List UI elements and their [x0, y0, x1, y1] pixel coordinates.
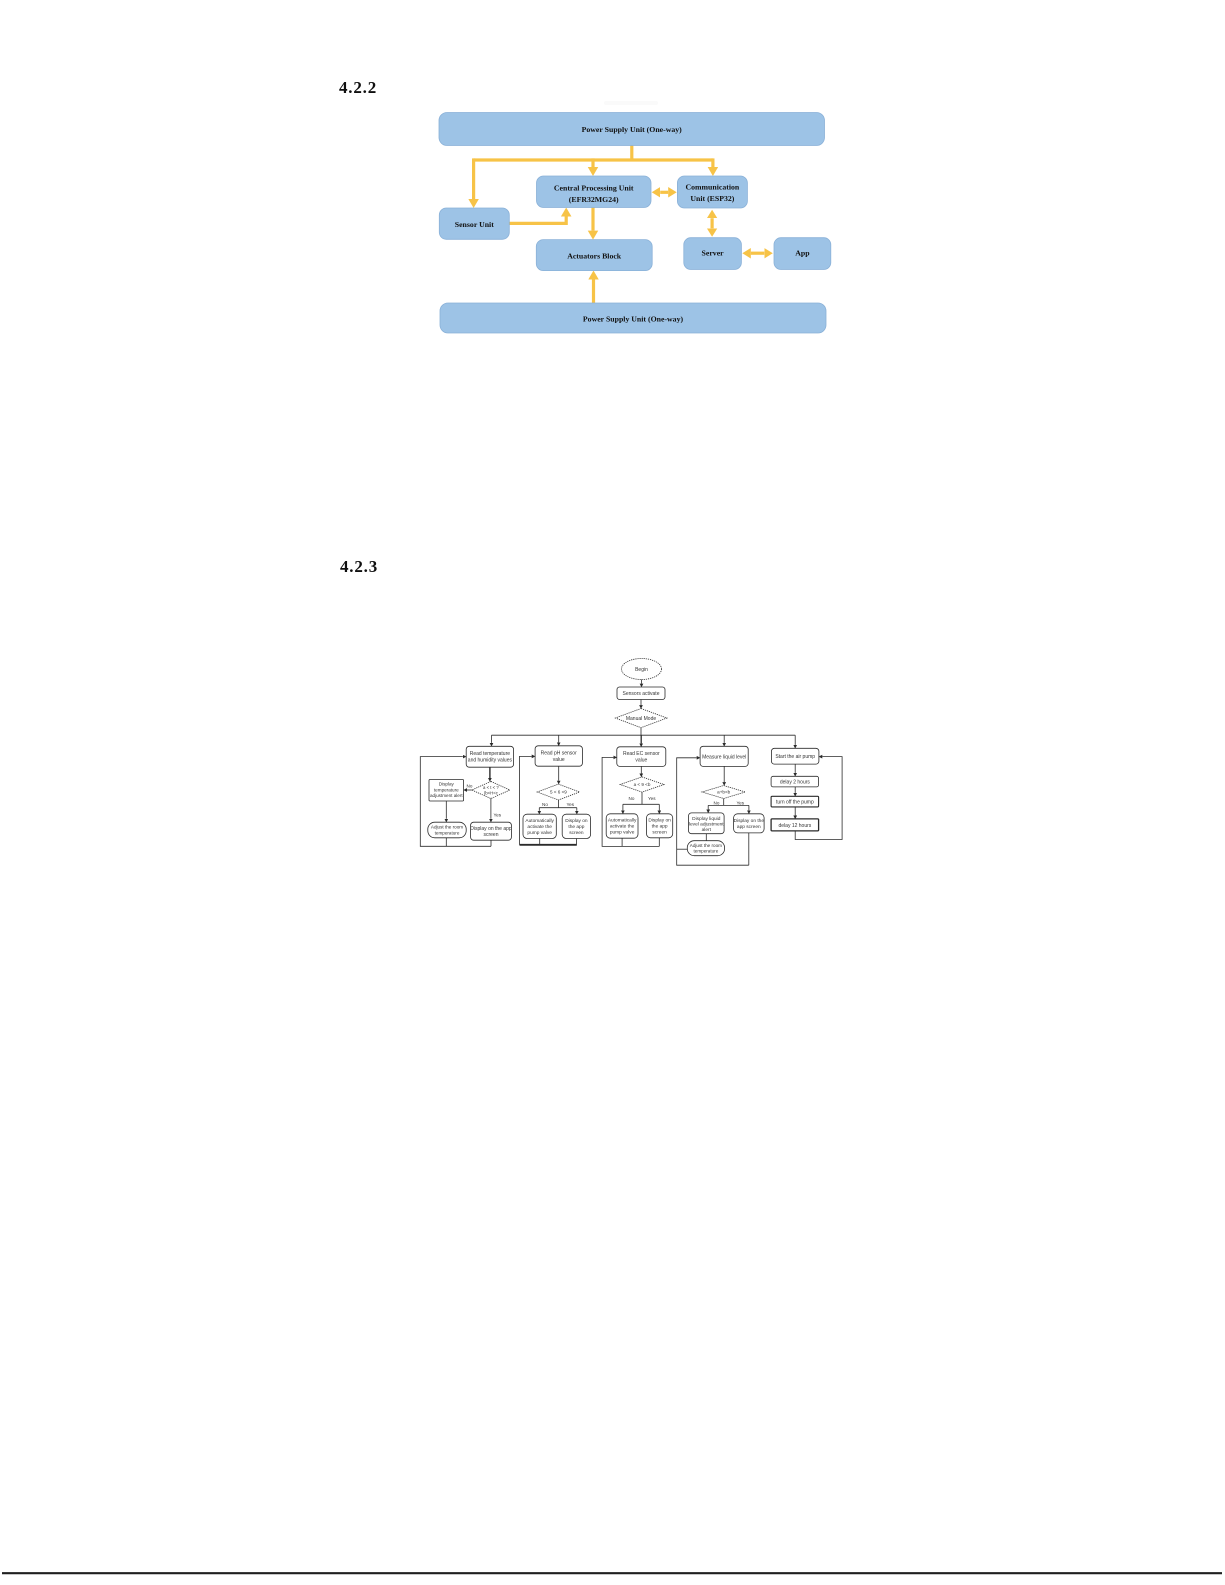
svg-text:Manual Mode: Manual Mode: [626, 716, 657, 722]
svg-text:Yes: Yes: [737, 800, 745, 805]
svg-text:Begin: Begin: [635, 667, 648, 673]
svg-text:Measure liquid level: Measure liquid level: [702, 754, 746, 760]
svg-text:Sensors activate: Sensors activate: [623, 691, 660, 697]
svg-text:and humidity values: and humidity values: [468, 758, 513, 764]
svg-text:a < 9 <b: a < 9 <b: [634, 782, 651, 787]
svg-text:Adjust the room: Adjust the room: [690, 843, 722, 848]
svg-text:Read pH sensor: Read pH sensor: [541, 750, 577, 756]
svg-text:Yes: Yes: [648, 796, 656, 801]
svg-text:pump valve: pump valve: [610, 829, 635, 835]
svg-text:temperature: temperature: [435, 831, 460, 836]
svg-text:pump valve: pump valve: [527, 830, 552, 836]
svg-text:temperature: temperature: [434, 787, 459, 792]
svg-text:Power Supply Unit (One-way): Power Supply Unit (One-way): [583, 314, 684, 323]
svg-text:Display: Display: [439, 782, 455, 787]
svg-text:Start the air pump: Start the air pump: [775, 754, 815, 760]
svg-text:temperature: temperature: [694, 849, 719, 854]
svg-text:a+b<b: a+b<b: [717, 790, 730, 795]
svg-text:alert: alert: [702, 827, 712, 833]
svg-text:Display liquid: Display liquid: [692, 816, 721, 822]
svg-text:Central Processing Unit: Central Processing Unit: [554, 184, 634, 193]
svg-text:screen: screen: [569, 830, 584, 836]
svg-text:level adjustment: level adjustment: [689, 821, 724, 827]
svg-text:the app: the app: [568, 824, 584, 830]
svg-text:turn off the pump: turn off the pump: [776, 799, 814, 805]
svg-text:Yes: Yes: [494, 813, 502, 818]
svg-text:Display on the: Display on the: [734, 818, 765, 824]
svg-text:Power Supply Unit (One-way): Power Supply Unit (One-way): [582, 125, 683, 134]
svg-text:Adjust the room: Adjust the room: [431, 825, 463, 830]
svg-text:(EFR32MG24): (EFR32MG24): [569, 195, 619, 204]
svg-text:No: No: [542, 802, 548, 807]
svg-text:Server: Server: [702, 248, 725, 257]
svg-text:(b<H<c: (b<H<c: [484, 791, 499, 796]
svg-text:Automatically: Automatically: [525, 818, 554, 824]
svg-text:Unit (ESP32): Unit (ESP32): [690, 194, 734, 203]
svg-text:No: No: [714, 800, 720, 805]
svg-text:Display on the app: Display on the app: [470, 826, 512, 832]
svg-text:activate the: activate the: [527, 824, 552, 830]
svg-text:value: value: [553, 757, 565, 763]
svg-text:activate the: activate the: [610, 823, 635, 829]
svg-text:Automatically: Automatically: [608, 817, 637, 823]
svg-text:Actuators Block: Actuators Block: [567, 251, 622, 260]
svg-text:adjustment alert: adjustment alert: [430, 793, 463, 798]
svg-text:screen: screen: [483, 832, 498, 838]
svg-text:Display on: Display on: [648, 817, 671, 823]
svg-text:Yes: Yes: [567, 802, 575, 807]
svg-text:Sensor Unit: Sensor Unit: [455, 220, 494, 229]
svg-text:App: App: [795, 248, 810, 257]
svg-text:a < t < ?: a < t < ?: [483, 785, 499, 790]
svg-text:No: No: [629, 796, 635, 801]
svg-text:Read EC sensor: Read EC sensor: [623, 751, 660, 757]
svg-text:value: value: [635, 757, 647, 763]
svg-text:delay 12 hours: delay 12 hours: [778, 823, 811, 829]
svg-text:Display on: Display on: [565, 818, 588, 824]
svg-text:screen: screen: [652, 829, 667, 835]
svg-text:No: No: [467, 783, 473, 788]
svg-text:the app: the app: [652, 823, 668, 829]
svg-text:5 < 6 <9: 5 < 6 <9: [550, 790, 567, 795]
svg-text:Read temperature: Read temperature: [470, 751, 511, 757]
svg-text:delay 2 hours: delay 2 hours: [780, 779, 811, 785]
svg-text:app screen: app screen: [737, 824, 761, 830]
svg-text:Communication: Communication: [686, 183, 740, 192]
